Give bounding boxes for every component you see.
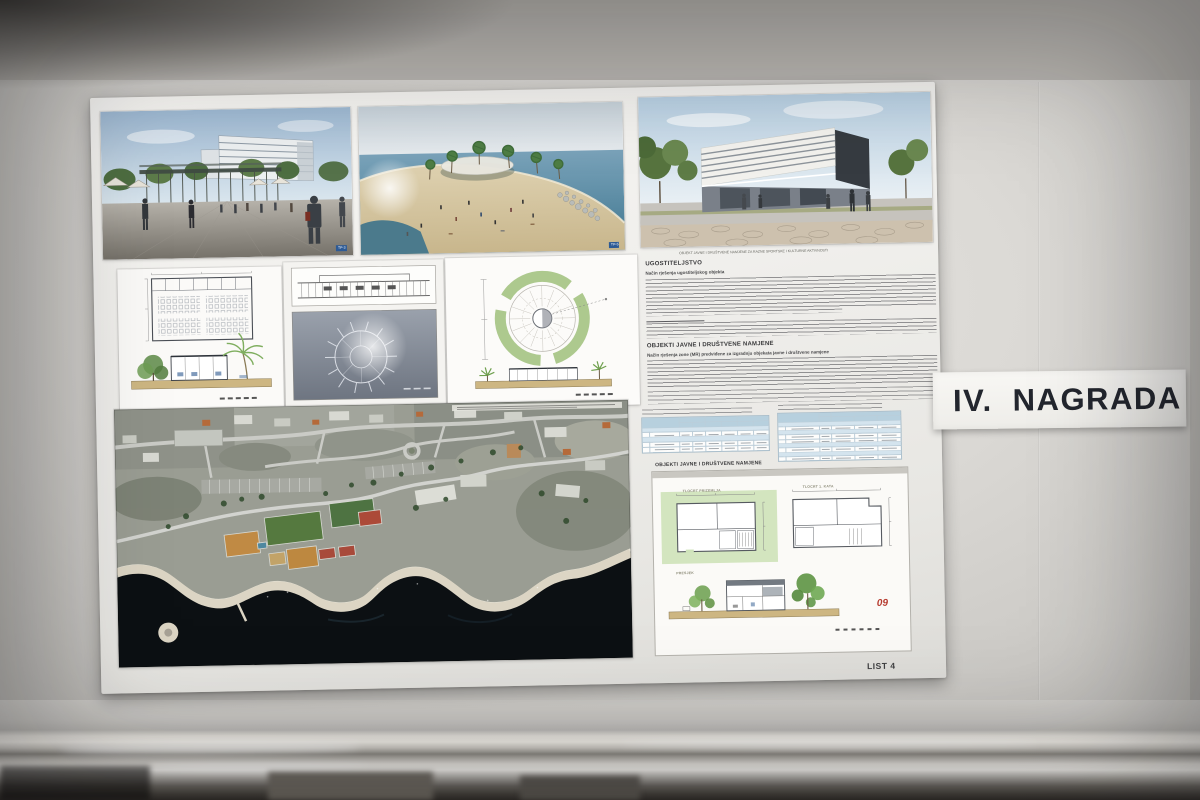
area-table-right bbox=[778, 412, 901, 462]
plaza-illustration bbox=[100, 107, 353, 260]
section-label: PRESJEK bbox=[676, 571, 694, 575]
circular-plan-drawing bbox=[445, 255, 640, 409]
tables-section-heading: OBJEKTI JAVNE I DRUŠTVENE NAMJENE bbox=[655, 460, 762, 469]
exhibition-photo: TP-3 bbox=[0, 0, 1200, 800]
paragraph-block bbox=[648, 386, 938, 405]
elevation-small bbox=[475, 361, 611, 389]
section2-heading: OBJEKTI JAVNE I DRUŠTVENE NAMJENE bbox=[647, 341, 774, 350]
panel-circular-plan bbox=[445, 255, 640, 409]
box-header-strip bbox=[652, 467, 907, 478]
rendering-beach-aerial: TP-5 bbox=[358, 102, 625, 255]
ledge-object bbox=[268, 772, 433, 800]
panel-tag-label: TP-5 bbox=[611, 243, 619, 247]
section-presjek bbox=[668, 573, 839, 619]
public-building-drawings-box: TLOCRT PRIZEMLJA TLOCRT 1. KATA PRESJEK … bbox=[652, 467, 910, 655]
panel-restaurant-plan bbox=[117, 266, 284, 409]
shadow-top-left bbox=[0, 0, 520, 90]
panel-tag-label: TP-3 bbox=[338, 246, 346, 250]
panel-pavilion-elevation-plan bbox=[283, 259, 446, 408]
ledge-shadow bbox=[0, 766, 150, 800]
competition-poster: TP-3 bbox=[90, 82, 946, 694]
red-mark: 09 bbox=[877, 598, 888, 609]
section1-subheading: Način rješenja ugostiteljskog objekta bbox=[645, 270, 724, 276]
table-caption-right bbox=[778, 403, 882, 412]
rendering-promenade-plaza: TP-3 bbox=[100, 107, 353, 260]
sheet-number: LIST 4 bbox=[867, 661, 896, 672]
ledge-object bbox=[520, 776, 640, 800]
masterplan-illustration bbox=[114, 400, 633, 668]
wall-edge-right bbox=[1190, 80, 1200, 700]
area-table-left bbox=[642, 416, 769, 452]
rail-reflection bbox=[150, 764, 370, 772]
aerial-masterplan-map bbox=[114, 400, 633, 668]
building-illustration bbox=[638, 92, 933, 248]
restaurant-plan-drawing bbox=[117, 266, 284, 409]
rendering-public-building bbox=[638, 92, 933, 248]
beach-illustration bbox=[358, 102, 625, 255]
pavilion-drawing bbox=[283, 259, 446, 408]
rail-reflection bbox=[620, 738, 1040, 748]
section1-heading: UGOSTITELJSTVO bbox=[645, 260, 702, 268]
plan-first-label: TLOCRT 1. KATA bbox=[803, 485, 834, 489]
section-drawing bbox=[131, 333, 272, 390]
award-label-text: IV. NAGRADA bbox=[933, 380, 1182, 419]
paragraph-block bbox=[647, 355, 937, 389]
award-label-strip: IV. NAGRADA bbox=[933, 369, 1187, 429]
table-caption-left bbox=[642, 407, 752, 416]
paragraph-block bbox=[646, 274, 937, 313]
building-caption: OBJEKT JAVNE I DRUŠTVENE NAMJENE ZA RAZN… bbox=[679, 249, 828, 255]
plan-ground-label: TLOCRT PRIZEMLJA bbox=[683, 489, 721, 493]
first-floor-plan bbox=[793, 488, 892, 548]
